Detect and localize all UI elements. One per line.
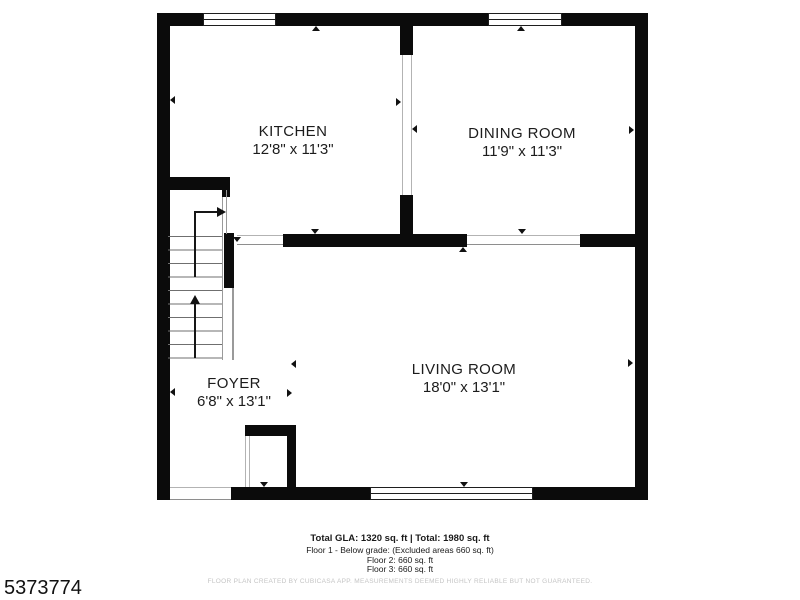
room-dims: 18'0" x 13'1" bbox=[412, 379, 516, 397]
stairs-down-arrow-stem bbox=[194, 303, 196, 358]
footer-floor-3: Floor 3: 660 sq. ft bbox=[367, 564, 433, 574]
room-label-kitchen: KITCHEN 12'8" x 11'3" bbox=[252, 123, 333, 158]
wall-kitchen-dining-upper bbox=[400, 26, 413, 55]
marker-icon bbox=[260, 482, 268, 487]
window-pane-line bbox=[489, 19, 561, 20]
marker-icon bbox=[628, 359, 633, 367]
foyer-stair-line bbox=[232, 288, 234, 360]
marker-icon bbox=[311, 229, 319, 234]
opening-front-door bbox=[170, 487, 231, 500]
opening-living-dining bbox=[467, 235, 580, 245]
opening-kitchen-dining bbox=[402, 55, 412, 195]
marker-icon bbox=[460, 482, 468, 487]
marker-icon bbox=[233, 237, 241, 242]
marker-icon bbox=[312, 26, 320, 31]
room-label-foyer: FOYER 6'8" x 13'1" bbox=[197, 375, 271, 410]
stairs-up-arrow-icon bbox=[217, 207, 226, 217]
floor-plan: KITCHEN 12'8" x 11'3" DINING ROOM 11'9" … bbox=[0, 0, 800, 600]
window-pane-line bbox=[371, 493, 532, 494]
stairs-up-arrow-stem bbox=[194, 211, 196, 277]
room-name: LIVING ROOM bbox=[412, 361, 516, 379]
wall-middle-left bbox=[283, 234, 467, 247]
footer-total-gla: Total GLA: 1320 sq. ft | Total: 1980 sq.… bbox=[310, 533, 489, 544]
marker-icon bbox=[170, 388, 175, 396]
wall-stair-top bbox=[157, 177, 230, 190]
room-label-dining: DINING ROOM 11'9" x 11'3" bbox=[468, 125, 576, 160]
staircase-wall-line bbox=[226, 190, 227, 234]
room-name: DINING ROOM bbox=[468, 125, 576, 143]
wall-closet-right bbox=[287, 425, 296, 500]
marker-icon bbox=[518, 229, 526, 234]
marker-icon bbox=[396, 98, 401, 106]
marker-icon bbox=[170, 96, 175, 104]
opening-foyer-kitchen bbox=[237, 235, 283, 245]
footer-disclaimer: FLOOR PLAN CREATED BY CUBICASA APP. MEAS… bbox=[208, 578, 593, 585]
opening-closet-door bbox=[245, 436, 250, 487]
staircase-right-edge bbox=[222, 197, 223, 360]
footer-floor-1: Floor 1 - Below grade: (Excluded areas 6… bbox=[306, 545, 494, 555]
room-name: FOYER bbox=[197, 375, 271, 393]
marker-icon bbox=[287, 389, 292, 397]
listing-id: 5373774 bbox=[4, 577, 82, 600]
wall-middle-right bbox=[580, 234, 635, 247]
window-kitchen bbox=[203, 13, 276, 26]
wall-right bbox=[635, 13, 648, 500]
room-dims: 6'8" x 13'1" bbox=[197, 393, 271, 411]
stairs-up-arrow-line bbox=[194, 211, 218, 213]
marker-icon bbox=[459, 247, 467, 252]
marker-icon bbox=[412, 125, 417, 133]
marker-icon bbox=[629, 126, 634, 134]
room-dims: 12'8" x 11'3" bbox=[252, 141, 333, 159]
window-dining bbox=[488, 13, 562, 26]
room-name: KITCHEN bbox=[252, 123, 333, 141]
marker-icon bbox=[291, 360, 296, 368]
room-label-living: LIVING ROOM 18'0" x 13'1" bbox=[412, 361, 516, 396]
window-pane-line bbox=[204, 19, 275, 20]
window-living bbox=[370, 487, 533, 500]
room-dims: 11'9" x 11'3" bbox=[468, 143, 576, 161]
marker-icon bbox=[517, 26, 525, 31]
